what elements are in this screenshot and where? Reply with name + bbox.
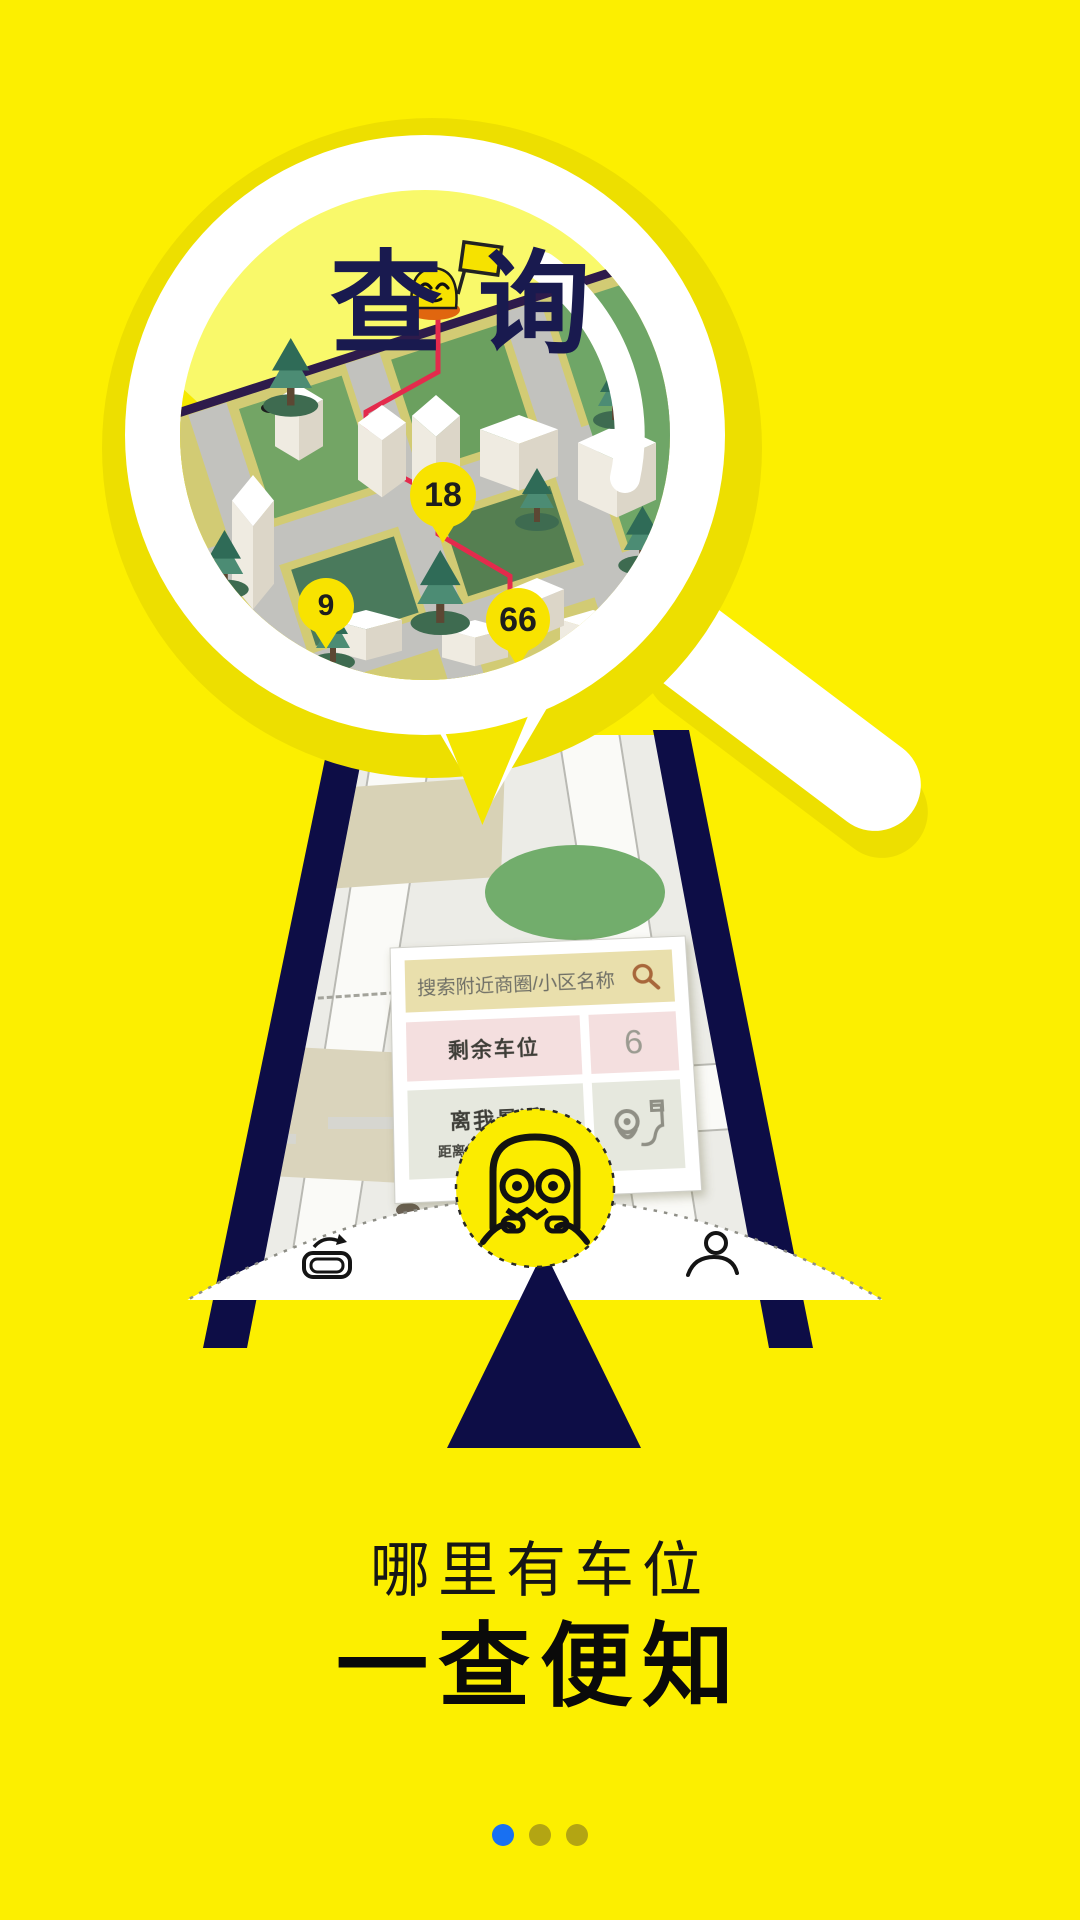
pin-tail: [431, 524, 455, 543]
pin-label: 9: [318, 589, 335, 623]
pin-tail: [506, 648, 530, 667]
remaining-spots-label: 剩余车位: [406, 1015, 582, 1081]
search-input: 搜索附近商圈/小区名称: [405, 949, 675, 1012]
arrow-up-triangle: [447, 1250, 641, 1448]
map-green-area: [485, 845, 665, 940]
caption-line2: 一查便知: [0, 1592, 1080, 1725]
pin-tail: [314, 630, 338, 649]
onboarding-carousel[interactable]: 搜索附近商圈/小区名称 剩余车位 6 离我最近 距离您的位置101米: [0, 0, 1080, 1920]
parking-pin-18: 18: [410, 462, 476, 528]
map-crosswalk: [328, 1117, 398, 1129]
car-icon: [298, 1232, 358, 1282]
user-icon: [682, 1230, 740, 1280]
pagination-dot-1[interactable]: [492, 1824, 514, 1846]
page-title: 查询: [180, 214, 740, 376]
pagination-dot-3[interactable]: [566, 1824, 588, 1846]
pagination-dot-2[interactable]: [529, 1824, 551, 1846]
mascot-face-icon: [453, 1106, 617, 1270]
remaining-spots-value: 6: [588, 1011, 679, 1074]
pin-label: 18: [424, 476, 462, 515]
parking-pin-66: 66: [486, 588, 550, 652]
parking-pin-9: 9: [298, 578, 354, 634]
pagination-dots: [0, 1824, 1080, 1846]
search-placeholder: 搜索附近商圈/小区名称: [417, 964, 616, 1000]
pin-label: 66: [499, 601, 537, 640]
search-icon: [629, 960, 662, 992]
